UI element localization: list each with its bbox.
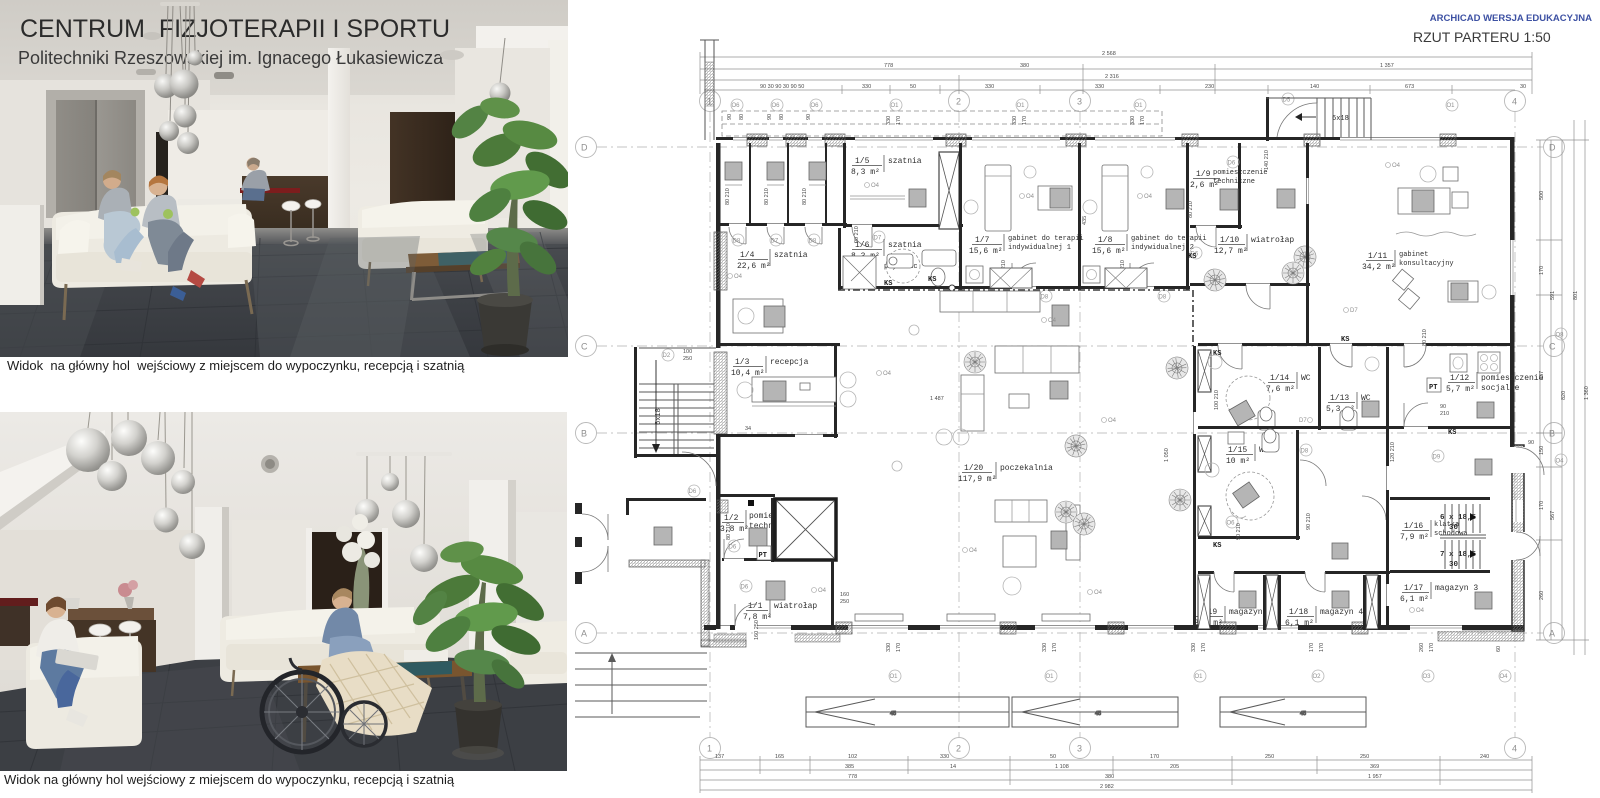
svg-text:170: 170 <box>1309 643 1315 652</box>
svg-text:gabinet do terapii: gabinet do terapii <box>1008 235 1084 243</box>
svg-text:80 210: 80 210 <box>726 523 732 540</box>
svg-text:ARCHICAD WERSJA EDUKACYJNA: ARCHICAD WERSJA EDUKACYJNA <box>1430 13 1592 24</box>
svg-text:D6: D6 <box>741 585 749 591</box>
svg-text:O2: O2 <box>1313 674 1322 680</box>
svg-text:O4: O4 <box>1048 318 1057 324</box>
svg-text:indywidualnej 2: indywidualnej 2 <box>1131 244 1194 252</box>
svg-text:1/9: 1/9 <box>1196 170 1211 179</box>
svg-text:1 108: 1 108 <box>1055 764 1069 770</box>
svg-text:260: 260 <box>1419 643 1425 652</box>
svg-text:778: 778 <box>848 774 857 780</box>
svg-text:1/10: 1/10 <box>1220 236 1239 245</box>
svg-text:O8: O8 <box>1556 333 1565 339</box>
svg-text:170: 170 <box>1429 643 1435 652</box>
svg-text:100: 100 <box>683 349 692 355</box>
svg-text:2: 2 <box>956 744 961 754</box>
svg-text:szatnia: szatnia <box>774 251 808 260</box>
svg-text:A: A <box>581 629 587 639</box>
svg-text:O1: O1 <box>1046 674 1055 680</box>
svg-text:591: 591 <box>1550 291 1556 300</box>
svg-text:90: 90 <box>1528 440 1534 446</box>
svg-text:1 957: 1 957 <box>1368 774 1382 780</box>
svg-text:D2: D2 <box>663 353 671 359</box>
svg-text:250: 250 <box>683 356 692 362</box>
svg-text:KS: KS <box>1341 336 1349 344</box>
svg-text:D8: D8 <box>1041 295 1049 301</box>
svg-text:170: 170 <box>896 643 902 652</box>
svg-text:konsultacyjny: konsultacyjny <box>1399 260 1454 268</box>
svg-text:O1: O1 <box>890 674 899 680</box>
svg-text:801: 801 <box>1573 291 1579 300</box>
svg-text:330: 330 <box>1130 116 1136 125</box>
svg-text:1/14: 1/14 <box>1270 374 1289 383</box>
svg-text:D6: D6 <box>689 489 697 495</box>
svg-text:O4: O4 <box>883 371 892 377</box>
svg-text:14: 14 <box>950 764 956 770</box>
svg-text:D7: D7 <box>1350 308 1358 314</box>
svg-text:380: 380 <box>1020 63 1029 69</box>
svg-text:O6: O6 <box>732 103 741 109</box>
svg-text:90: 90 <box>727 114 733 120</box>
svg-text:O4: O4 <box>969 548 978 554</box>
svg-text:140: 140 <box>1310 84 1319 90</box>
svg-text:1: 1 <box>707 744 712 754</box>
svg-text:D8: D8 <box>1159 295 1167 301</box>
svg-text:330: 330 <box>940 754 949 760</box>
svg-text:369: 369 <box>1370 764 1379 770</box>
svg-text:KS: KS <box>1448 429 1456 437</box>
svg-text:80: 80 <box>739 114 745 120</box>
svg-text:80 210: 80 210 <box>725 188 731 205</box>
svg-text:80 210: 80 210 <box>1188 201 1194 218</box>
svg-text:5,7 m²: 5,7 m² <box>1446 385 1475 394</box>
svg-text:2 568: 2 568 <box>1102 51 1116 57</box>
svg-text:90: 90 <box>1440 404 1446 410</box>
svg-text:170: 170 <box>896 116 902 125</box>
svg-text:O1: O1 <box>1195 674 1204 680</box>
svg-text:2: 2 <box>956 97 961 107</box>
svg-text:B: B <box>581 429 587 439</box>
svg-text:1/2: 1/2 <box>724 514 739 523</box>
svg-text:O6: O6 <box>772 103 781 109</box>
svg-text:6x18: 6x18 <box>1332 115 1349 123</box>
svg-text:330: 330 <box>985 84 994 90</box>
svg-text:140 210: 140 210 <box>1264 150 1270 170</box>
svg-text:170: 170 <box>1201 643 1207 652</box>
svg-text:O4: O4 <box>818 588 827 594</box>
svg-text:117,9 m²: 117,9 m² <box>958 475 996 484</box>
svg-text:D7: D7 <box>771 239 779 245</box>
svg-text:30: 30 <box>1449 561 1459 569</box>
svg-text:15,6 m²: 15,6 m² <box>1092 247 1126 256</box>
svg-text:PT: PT <box>1429 384 1437 392</box>
svg-text:O4: O4 <box>1026 194 1035 200</box>
svg-text:B: B <box>1549 429 1555 439</box>
svg-text:30: 30 <box>1520 84 1526 90</box>
svg-text:90 30 90 30 90 50: 90 30 90 30 90 50 <box>760 84 804 90</box>
svg-text:D7: D7 <box>1299 418 1307 424</box>
svg-text:330: 330 <box>1191 643 1197 652</box>
svg-text:WC: WC <box>1301 374 1311 383</box>
svg-text:wiatrołap: wiatrołap <box>774 602 817 611</box>
svg-text:1 487: 1 487 <box>930 396 944 402</box>
svg-text:magazyn 4: magazyn 4 <box>1320 608 1363 617</box>
svg-text:D8: D8 <box>733 239 741 245</box>
svg-text:230: 230 <box>1205 84 1214 90</box>
svg-text:7,9 m²: 7,9 m² <box>1400 533 1429 542</box>
svg-text:170: 170 <box>1319 643 1325 652</box>
svg-text:1 357: 1 357 <box>1380 63 1394 69</box>
svg-text:1/12: 1/12 <box>1450 374 1469 383</box>
svg-text:KS: KS <box>928 276 936 284</box>
svg-text:O4: O4 <box>1094 590 1103 596</box>
svg-text:90 210: 90 210 <box>1236 523 1242 540</box>
svg-text:170: 170 <box>1539 266 1545 275</box>
svg-text:wiatrołap: wiatrołap <box>1251 236 1294 245</box>
svg-text:120 210: 120 210 <box>1390 442 1396 462</box>
svg-text:12,7 m²: 12,7 m² <box>1214 247 1248 256</box>
svg-text:gabinet do terapii: gabinet do terapii <box>1131 235 1207 243</box>
svg-text:1/4: 1/4 <box>740 251 755 260</box>
svg-text:80: 80 <box>779 114 785 120</box>
svg-text:D7: D7 <box>874 236 882 242</box>
svg-text:2 316: 2 316 <box>1105 74 1119 80</box>
svg-text:330: 330 <box>862 84 871 90</box>
svg-text:1/8: 1/8 <box>1098 236 1113 245</box>
svg-text:O4: O4 <box>1144 194 1153 200</box>
svg-text:1/18: 1/18 <box>1289 608 1308 617</box>
svg-text:8,3 m²: 8,3 m² <box>851 168 880 177</box>
svg-text:O4: O4 <box>1108 418 1117 424</box>
svg-text:1/1: 1/1 <box>748 602 763 611</box>
svg-text:250: 250 <box>840 599 849 605</box>
svg-text:4: 4 <box>1512 744 1517 754</box>
svg-text:165: 165 <box>775 754 784 760</box>
svg-text:45: 45 <box>1300 711 1306 717</box>
svg-text:380: 380 <box>1105 774 1114 780</box>
svg-text:778: 778 <box>884 63 893 69</box>
svg-text:KS: KS <box>1213 542 1221 550</box>
svg-text:330: 330 <box>1095 84 1104 90</box>
svg-text:820: 820 <box>1561 391 1567 400</box>
svg-text:50: 50 <box>1050 754 1056 760</box>
svg-text:1/13: 1/13 <box>1330 394 1349 403</box>
svg-text:80 210: 80 210 <box>764 188 770 205</box>
svg-text:45: 45 <box>890 711 896 717</box>
svg-text:102: 102 <box>848 754 857 760</box>
svg-text:90: 90 <box>806 114 812 120</box>
svg-text:500: 500 <box>1539 191 1545 200</box>
svg-text:170: 170 <box>1140 116 1146 125</box>
svg-text:6,1 m²: 6,1 m² <box>1400 595 1429 604</box>
svg-text:15,6 m²: 15,6 m² <box>969 247 1003 256</box>
svg-text:250: 250 <box>1360 754 1369 760</box>
svg-text:170: 170 <box>1052 643 1058 652</box>
svg-text:O4: O4 <box>871 183 880 189</box>
svg-text:1/17: 1/17 <box>1404 584 1423 593</box>
svg-text:gabinet: gabinet <box>1399 251 1428 259</box>
svg-text:1/5: 1/5 <box>855 157 870 166</box>
svg-text:D: D <box>581 143 588 153</box>
svg-text:2 982: 2 982 <box>1100 784 1114 790</box>
svg-text:D: D <box>1549 143 1556 153</box>
svg-text:KS: KS <box>884 280 892 288</box>
svg-text:D8: D8 <box>1301 449 1309 455</box>
svg-text:3,8 m²: 3,8 m² <box>720 525 749 534</box>
svg-text:330: 330 <box>1042 643 1048 652</box>
svg-text:170: 170 <box>1022 116 1028 125</box>
svg-text:RZUT PARTERU 1:50: RZUT PARTERU 1:50 <box>1413 29 1551 45</box>
svg-text:160: 160 <box>840 592 849 598</box>
svg-text:673: 673 <box>1405 84 1414 90</box>
svg-text:6,1 m²: 6,1 m² <box>1285 619 1314 628</box>
svg-text:210: 210 <box>1440 411 1449 417</box>
svg-text:60: 60 <box>1496 646 1502 652</box>
svg-text:O1: O1 <box>1447 103 1456 109</box>
svg-text:O1: O1 <box>1135 103 1144 109</box>
svg-text:170: 170 <box>1150 754 1159 760</box>
svg-text:1/7: 1/7 <box>975 236 990 245</box>
svg-text:3: 3 <box>1077 97 1082 107</box>
svg-text:O4: O4 <box>1416 608 1425 614</box>
svg-text:1/11: 1/11 <box>1368 252 1387 261</box>
svg-text:137: 137 <box>715 754 724 760</box>
svg-text:1/6: 1/6 <box>855 241 870 250</box>
svg-text:O1: O1 <box>891 103 900 109</box>
svg-text:O1: O1 <box>1017 103 1026 109</box>
svg-text:recepcja: recepcja <box>770 358 809 367</box>
svg-text:435: 435 <box>1082 216 1088 225</box>
svg-text:szatnia: szatnia <box>888 241 922 250</box>
svg-text:3: 3 <box>1077 744 1082 754</box>
svg-text:150: 150 <box>1539 446 1545 455</box>
svg-text:260: 260 <box>1539 591 1545 600</box>
svg-text:30: 30 <box>1449 524 1459 532</box>
svg-text:45: 45 <box>1095 711 1101 717</box>
svg-text:567: 567 <box>1550 511 1556 520</box>
svg-text:330: 330 <box>1012 116 1018 125</box>
svg-text:50: 50 <box>910 84 916 90</box>
svg-text:indywidualnej 1: indywidualnej 1 <box>1008 244 1071 252</box>
svg-text:90 210: 90 210 <box>1306 513 1312 530</box>
svg-text:1/20: 1/20 <box>964 464 983 473</box>
svg-text:KS: KS <box>1188 253 1196 261</box>
svg-text:240: 240 <box>1480 754 1489 760</box>
svg-text:O6: O6 <box>1227 521 1236 527</box>
svg-text:170: 170 <box>1539 501 1545 510</box>
svg-text:4: 4 <box>1512 97 1517 107</box>
svg-text:250: 250 <box>1265 754 1274 760</box>
svg-text:330: 330 <box>886 116 892 125</box>
svg-text:1/16: 1/16 <box>1404 522 1423 531</box>
svg-text:34: 34 <box>745 426 751 432</box>
svg-text:D6: D6 <box>1228 161 1236 167</box>
svg-text:385: 385 <box>845 764 854 770</box>
svg-text:C: C <box>581 342 588 352</box>
svg-text:D8: D8 <box>809 239 817 245</box>
svg-text:330: 330 <box>886 643 892 652</box>
svg-text:1/3: 1/3 <box>735 358 750 367</box>
svg-text:22,6 m²: 22,6 m² <box>737 262 771 271</box>
svg-text:C: C <box>1549 342 1556 352</box>
svg-text:O6: O6 <box>811 103 820 109</box>
svg-text:80 210: 80 210 <box>1422 329 1428 346</box>
svg-text:O4: O4 <box>734 274 743 280</box>
svg-text:techniczne: techniczne <box>1213 178 1255 186</box>
svg-text:magazyn 3: magazyn 3 <box>1435 584 1478 593</box>
svg-text:1 050: 1 050 <box>1164 448 1170 462</box>
svg-text:7,6 m²: 7,6 m² <box>1266 385 1295 394</box>
svg-text:D6: D6 <box>729 545 737 551</box>
svg-text:O4: O4 <box>1392 163 1401 169</box>
svg-text:1/15: 1/15 <box>1228 446 1247 455</box>
svg-text:205: 205 <box>1170 764 1179 770</box>
svg-text:socjalne: socjalne <box>1481 384 1520 393</box>
svg-text:90: 90 <box>767 114 773 120</box>
svg-text:O4: O4 <box>1556 459 1565 465</box>
svg-text:10 m²: 10 m² <box>1226 457 1250 466</box>
svg-text:D9: D9 <box>1433 455 1441 461</box>
svg-text:34,2 m²: 34,2 m² <box>1362 263 1396 272</box>
svg-text:O3: O3 <box>1423 674 1432 680</box>
svg-text:O4: O4 <box>1500 674 1509 680</box>
svg-text:1 360: 1 360 <box>1584 386 1590 400</box>
svg-text:A: A <box>1549 629 1555 639</box>
svg-text:100 210: 100 210 <box>1214 390 1220 410</box>
svg-text:poczekalnia: poczekalnia <box>1000 464 1053 473</box>
svg-text:160 250: 160 250 <box>754 620 760 640</box>
svg-text:80 210: 80 210 <box>802 188 808 205</box>
svg-text:PT: PT <box>759 552 767 560</box>
svg-text:szatnia: szatnia <box>888 157 922 166</box>
svg-text:pomieszczenie: pomieszczenie <box>1481 374 1544 383</box>
